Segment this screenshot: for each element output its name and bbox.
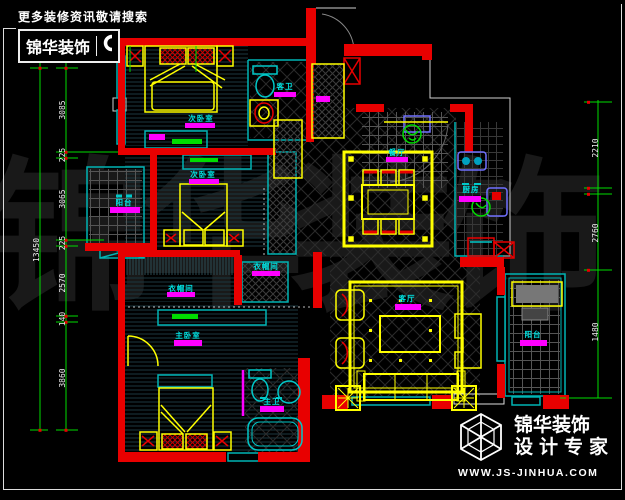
dim-left-5: 2570 (58, 273, 67, 292)
dim-left-4: 225 (58, 236, 67, 251)
room-label-master-bath: 主卫 (260, 396, 284, 412)
dim-left-1: 3085 (58, 100, 67, 119)
footer-website: WWW.JS-JINHUA.COM (458, 467, 618, 479)
floorplan-canvas: 锦华装饰 (0, 0, 625, 500)
svg-text:客卫: 客卫 (276, 81, 294, 91)
brand-header: 更多装修资讯敬请搜索 锦华装饰 (18, 8, 148, 63)
brand-box: 锦华装饰 (18, 29, 120, 63)
svg-text:主卧室: 主卧室 (175, 330, 201, 340)
dim-left-total: 13450 (32, 238, 41, 262)
misc-label-bars (316, 96, 330, 102)
svg-text:厨房: 厨房 (463, 184, 480, 194)
brand-divider (96, 36, 97, 56)
svg-text:衣帽间: 衣帽间 (253, 261, 279, 271)
room-label-dining: 餐厅 (386, 147, 408, 162)
svg-text:客厅: 客厅 (398, 293, 416, 303)
footer-subtitle: 设计专家 (514, 437, 614, 459)
svg-text:阳台: 阳台 (525, 329, 542, 339)
border-top-stub (3, 28, 16, 29)
dim-left-7: 3860 (58, 368, 67, 387)
svg-text:主卫: 主卫 (264, 396, 281, 406)
svg-text:次卧室: 次卧室 (190, 169, 216, 179)
dim-left-6: 140 (58, 312, 67, 327)
border-right (621, 4, 622, 490)
dim-right-2: 2760 (591, 223, 600, 242)
border-left (3, 28, 4, 489)
room-label-bedroom2: 次卧室 (189, 169, 219, 184)
border-bottom (3, 489, 621, 490)
svg-text:衣帽间: 衣帽间 (168, 283, 194, 293)
room-label-guest-bath: 客卫 (274, 81, 296, 97)
footer-brand-name: 锦华装饰 (514, 415, 614, 437)
room-label-cloakroom: 衣帽间 (167, 283, 195, 297)
room-label-master-bedroom: 主卧室 (174, 330, 202, 346)
brand-footer: 锦华装饰 设计专家 WWW.JS-JINHUA.COM (458, 412, 618, 479)
dim-left-2: 225 (58, 148, 67, 163)
cube-logo-icon (458, 412, 504, 462)
dimensions-right: 2210 2760 1480 (560, 100, 612, 400)
svg-text:阳台: 阳台 (116, 197, 133, 207)
dim-left-3: 3065 (58, 189, 67, 208)
magnifier-icon (103, 34, 112, 58)
brand-tagline: 更多装修资讯敬请搜索 (18, 8, 148, 25)
dim-right-1: 2210 (591, 138, 600, 157)
room-label-closet: 衣帽间 (252, 261, 280, 276)
room-label-kitchen: 厨房 (459, 184, 481, 202)
svg-text:餐厅: 餐厅 (388, 147, 406, 157)
room-label-bedroom1: 次卧室 (185, 113, 215, 128)
svg-text:次卧室: 次卧室 (188, 113, 214, 123)
dim-right-3: 1480 (591, 322, 600, 341)
brand-name: 锦华装饰 (26, 34, 90, 58)
